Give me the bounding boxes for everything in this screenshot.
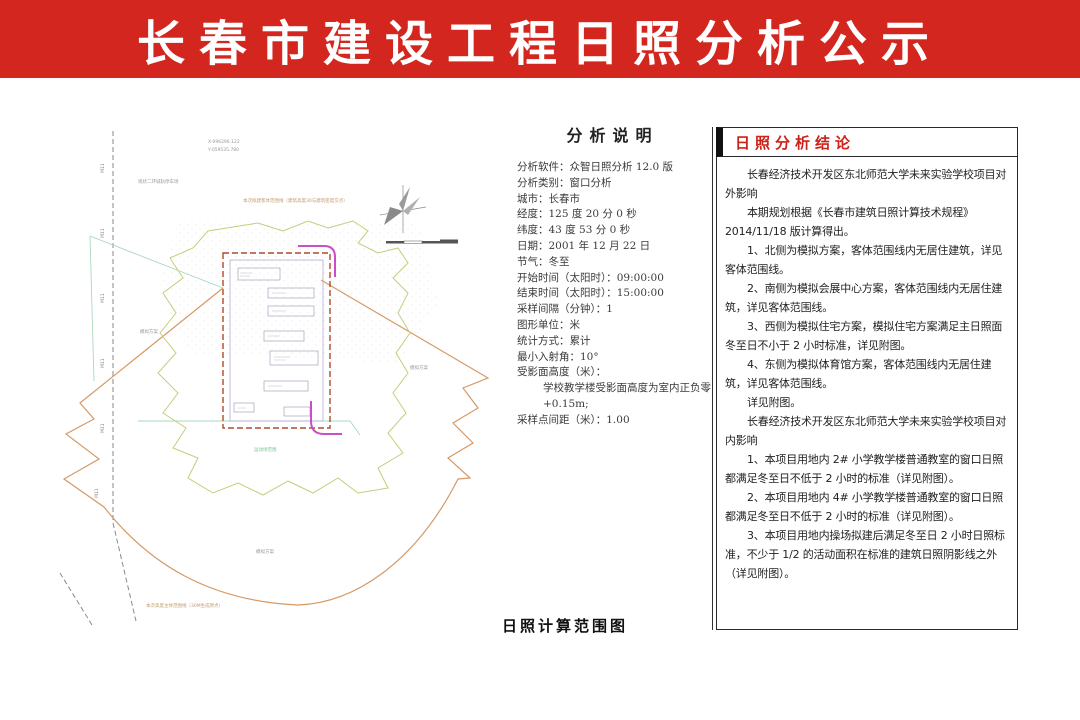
road-label: M11 [100,163,106,173]
sim-bottom-label: 模拟方案 [256,548,274,555]
road-label: M11 [100,358,106,368]
page-title: 长春市建设工程日照分析公示 [137,4,943,74]
site-plan-svg: M11 M11 M11 M11 M11 M11 [58,103,494,643]
sim-left-label: 模拟方案 [140,328,158,335]
conclusion-title-box: 日照分析结论 [716,127,1018,157]
notice-page: 长春市建设工程日照分析公示 M11 M11 M11 M11 M11 M11 [0,0,1080,720]
analysis-line: 日期：2001 年 12 月 22 日 [505,239,720,255]
conclusion-panel: 日照分析结论 长春经济技术开发区东北师范大学未来实验学校项目对外影响 本期规划根… [712,127,1018,630]
map-caption: 日照计算范围图 [440,615,690,636]
gray-dashed-line [113,131,136,621]
conclusion-paragraph: 4、东侧为模拟体育馆方案，客体范围线内无居住建筑，详见客体范围线。 [725,355,1007,393]
analysis-line: 开始时间（太阳时）：09:00:00 [505,271,720,287]
conclusion-paragraph: 详见附图。 [725,393,1007,412]
conclusion-paragraph: 2、南侧为模拟会展中心方案，客体范围线内无居住建筑，详见客体范围线。 [725,279,1007,317]
site-plan-map: M11 M11 M11 M11 M11 M11 [58,103,494,643]
analysis-line: 经度：125 度 20 分 0 秒 [505,207,720,223]
analysis-line: 结束时间（太阳时）：15:00:00 [505,286,720,302]
sim-right-label: 模拟方案 [410,364,428,371]
analysis-section: 分析说明 分析软件：众智日照分析 12.0 版 分析类别：窗口分析 城市：长春市… [505,122,720,429]
object-scope-note-label: 本次拟建客体范围线（建筑高度30与建筑密度交点） [243,197,348,204]
analysis-line: 最小入射角：10° [505,350,720,366]
playground-note-label: 运动场范围 [254,446,277,453]
analysis-line: 统计方式：累计 [505,334,720,350]
conclusion-paragraph: 长春经济技术开发区东北师范大学未来实验学校项目对内影响 [725,412,1007,450]
magenta-line-bottom [311,401,342,434]
road-label: M11 [100,293,106,303]
coord-x-label: X-096296.122 [208,139,240,145]
conclusion-paragraph: 3、西侧为模拟住宅方案，模拟住宅方案满足主日照面冬至日不小于 2 小时标准，详见… [725,317,1007,355]
analysis-title: 分析说明 [505,122,720,146]
analysis-line: 采样间隔（分钟）：1 [505,302,720,318]
existing-note-label: 现状二环城轨停车场 [138,178,179,185]
conclusion-paragraph: 1、本项目用地内 2# 小学教学楼普通教室的窗口日照都满足冬至日不低于 2 小时… [725,450,1007,488]
analysis-line: 学校教学楼受影面高度为室内正负零 +0.15m; [505,381,720,413]
conclusion-paragraph: 3、本项目用地内操场拟建后满足冬至日 2 小时日照标准，不少于 1/2 的活动面… [725,526,1007,583]
conclusion-body: 长春经济技术开发区东北师范大学未来实验学校项目对外影响 本期规划根据《长春市建筑… [716,157,1018,630]
conclusion-paragraph: 长春经济技术开发区东北师范大学未来实验学校项目对外影响 [725,165,1007,203]
gray-dashed-line-2 [60,573,92,625]
road-label: M11 [94,488,100,498]
header-banner: 长春市建设工程日照分析公示 [0,0,1080,78]
analysis-line: 节气：冬至 [505,255,720,271]
analysis-line: 图形单位：米 [505,318,720,334]
conclusion-paragraph: 本期规划根据《长春市建筑日照计算技术规程》2014/11/18 版计算得出。 [725,203,1007,241]
coord-y-label: Y-059535.780 [207,147,239,153]
subject-scope-note-label: 本次高度主体范围线（30M生成原点） [146,602,223,609]
conclusion-title: 日照分析结论 [723,132,855,153]
analysis-line: 纬度：43 度 53 分 0 秒 [505,223,720,239]
analysis-line: 分析软件：众智日照分析 12.0 版 [505,160,720,176]
analysis-line: 分析类别：窗口分析 [505,176,720,192]
conclusion-paragraph: 2、本项目用地内 4# 小学教学楼普通教室的窗口日照都满足冬至日不低于 2 小时… [725,488,1007,526]
road-label: M11 [100,228,106,238]
analysis-line: 受影面高度（米）： [505,365,720,381]
analysis-list: 分析软件：众智日照分析 12.0 版 分析类别：窗口分析 城市：长春市 经度：1… [505,160,720,429]
analysis-line: 城市：长春市 [505,192,720,208]
conclusion-paragraph: 1、北侧为模拟方案，客体范围线内无居住建筑，详见客体范围线。 [725,241,1007,279]
analysis-line: 采样点间距（米）：1.00 [505,413,720,429]
road-label: M11 [100,423,106,433]
